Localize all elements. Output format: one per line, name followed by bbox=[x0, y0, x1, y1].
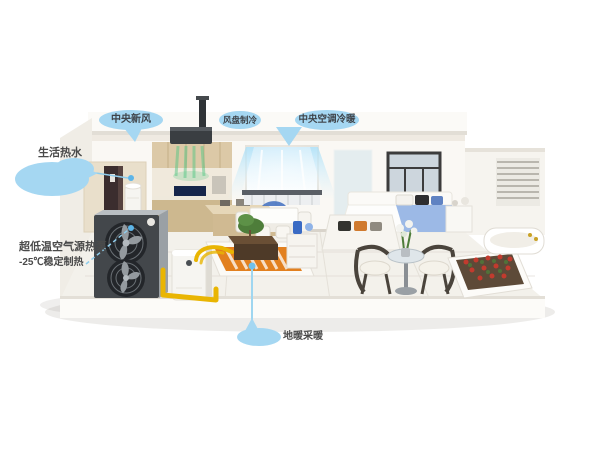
railing bbox=[242, 190, 322, 195]
tank-logo-dot bbox=[186, 260, 192, 266]
bubble-floor-heating bbox=[237, 328, 281, 346]
leader-dot-hot-water bbox=[128, 175, 134, 181]
base-slab bbox=[60, 296, 545, 318]
nightstand bbox=[446, 206, 472, 232]
fan-bottom bbox=[107, 259, 145, 297]
label-fan-coil-cooling: 风盘制冷 bbox=[220, 116, 260, 125]
label-fresh-air: 中央新风 bbox=[100, 115, 162, 125]
label-floor-heating: 地暖采暖 bbox=[283, 332, 323, 342]
blinds-window bbox=[496, 158, 540, 206]
bathtub bbox=[484, 228, 544, 254]
bedroom-window bbox=[388, 153, 440, 198]
brand-logo-dot bbox=[147, 218, 155, 226]
heat-pump-unit bbox=[94, 210, 168, 298]
label-heat-pump-line1: 超低温空气源热泵 bbox=[19, 242, 107, 253]
roof-duct-pipe bbox=[199, 98, 206, 130]
fan-top bbox=[105, 222, 147, 264]
label-hot-water: 生活热水 bbox=[38, 148, 82, 159]
label-heat-pump-line2: -25℃稳定制热 bbox=[19, 258, 83, 268]
leader-dot-floor-heating bbox=[249, 263, 256, 270]
label-central-ac: 中央空调冷暖 bbox=[296, 115, 358, 125]
leader-dot-heat-pump bbox=[128, 225, 134, 231]
blue-vase bbox=[293, 221, 302, 234]
home-hvac-illustration: 中央新风 风盘制冷 中央空调冷暖 生活热水 超低温空气源热泵 -25℃稳定制热 … bbox=[0, 0, 600, 450]
sofa bbox=[322, 215, 400, 250]
scene-svg bbox=[0, 0, 600, 450]
